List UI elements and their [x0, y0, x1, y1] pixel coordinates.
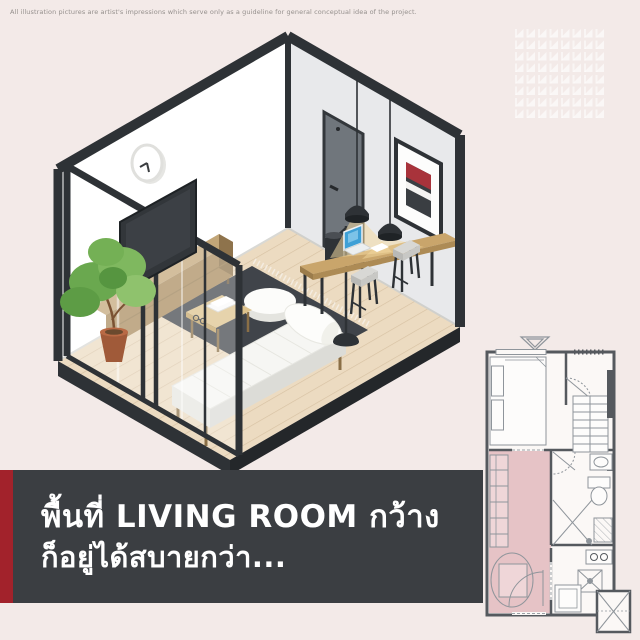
plan-toilet: [588, 477, 610, 488]
banner-accent-stripe: [0, 470, 13, 603]
plan-stove: [586, 550, 612, 564]
isometric-living-room: [58, 36, 460, 475]
plan-shower-tray: [594, 518, 612, 542]
plan-wardrobe: [573, 396, 608, 452]
plan-top-symbol: [521, 337, 549, 350]
plan-window: [496, 350, 546, 355]
headline-banner: พื้นที่ LIVING ROOM กว้าง ก็อยู่ได้สบายก…: [0, 470, 483, 603]
plan-shaft: [607, 370, 614, 418]
plan-balcony: [597, 591, 630, 632]
plan-sofa: [490, 455, 508, 547]
headline-line2: ก็อยู่ได้สบายกว่า...: [41, 539, 440, 577]
promo-graphic: { "disclaimer": "All illustration pictur…: [0, 0, 640, 640]
plan-bed: [490, 357, 546, 445]
floor-plan: [487, 337, 630, 632]
headline-line1: พื้นที่ LIVING ROOM กว้าง: [41, 497, 440, 539]
